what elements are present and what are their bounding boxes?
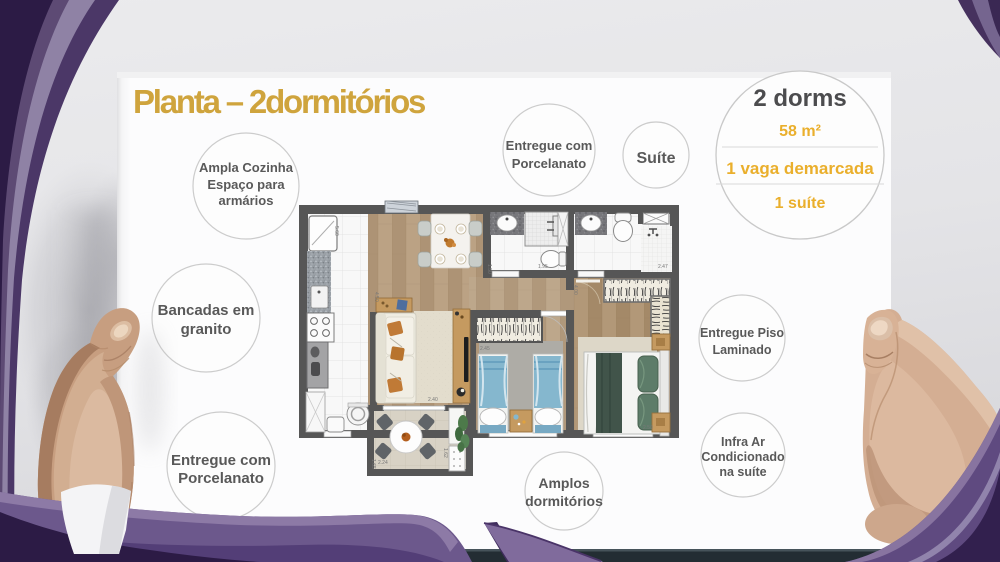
svg-text:Entregue com: Entregue com xyxy=(506,138,593,153)
svg-text:Infra Ar: Infra Ar xyxy=(721,435,765,449)
svg-text:1 vaga demarcada: 1 vaga demarcada xyxy=(726,159,874,178)
svg-text:1.65: 1.65 xyxy=(370,459,376,469)
svg-text:58 m²: 58 m² xyxy=(779,123,821,140)
svg-text:4.00: 4.00 xyxy=(572,285,578,295)
svg-text:Amplos: Amplos xyxy=(538,475,590,491)
svg-text:5.60: 5.60 xyxy=(333,226,339,236)
svg-text:1 suíte: 1 suíte xyxy=(775,195,826,212)
svg-text:Entregue com: Entregue com xyxy=(171,452,271,469)
svg-text:1.50: 1.50 xyxy=(486,264,492,274)
svg-text:2.50: 2.50 xyxy=(643,425,653,431)
svg-text:Laminado: Laminado xyxy=(712,343,771,357)
svg-text:Planta – 2dormitórios: Planta – 2dormitórios xyxy=(133,83,425,120)
svg-text:2.24: 2.24 xyxy=(378,460,388,466)
svg-text:Suíte: Suíte xyxy=(636,150,675,167)
svg-text:granito: granito xyxy=(181,321,232,338)
svg-text:Bancadas em: Bancadas em xyxy=(158,302,255,319)
svg-text:Porcelanato: Porcelanato xyxy=(512,156,586,171)
svg-text:Entregue Piso: Entregue Piso xyxy=(700,326,784,340)
svg-text:2.45: 2.45 xyxy=(480,346,490,352)
svg-text:Espaço para: Espaço para xyxy=(207,177,285,192)
svg-text:na suíte: na suíte xyxy=(719,465,766,479)
svg-text:4.50: 4.50 xyxy=(373,292,379,302)
svg-text:Condicionado: Condicionado xyxy=(701,450,785,464)
svg-text:1.95: 1.95 xyxy=(538,264,548,270)
svg-text:2 dorms: 2 dorms xyxy=(753,85,846,112)
svg-text:Porcelanato: Porcelanato xyxy=(178,470,264,487)
svg-text:2.47: 2.47 xyxy=(658,264,668,270)
svg-text:dormitórios: dormitórios xyxy=(525,493,603,509)
svg-text:Ampla Cozinha: Ampla Cozinha xyxy=(199,160,294,175)
svg-text:armários: armários xyxy=(219,193,274,208)
svg-text:1.62: 1.62 xyxy=(442,448,448,458)
svg-text:2.40: 2.40 xyxy=(428,397,438,403)
